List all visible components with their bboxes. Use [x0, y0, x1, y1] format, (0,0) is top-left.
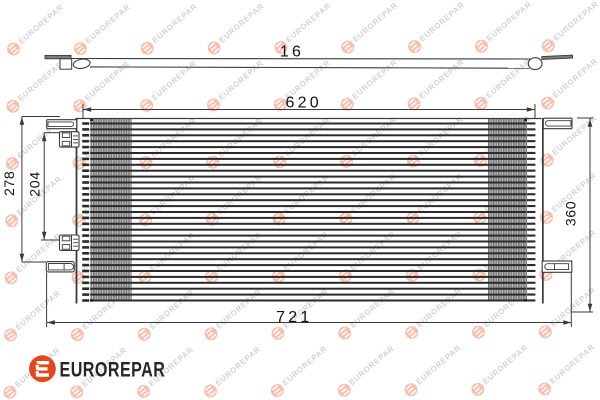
svg-text:16: 16 — [280, 43, 304, 60]
svg-text:204: 204 — [28, 171, 44, 196]
svg-text:360: 360 — [564, 201, 580, 226]
svg-text:721: 721 — [276, 309, 312, 326]
svg-text:620: 620 — [286, 95, 322, 112]
svg-text:278: 278 — [2, 171, 18, 196]
svg-text:EUROREPAR: EUROREPAR — [60, 358, 166, 382]
